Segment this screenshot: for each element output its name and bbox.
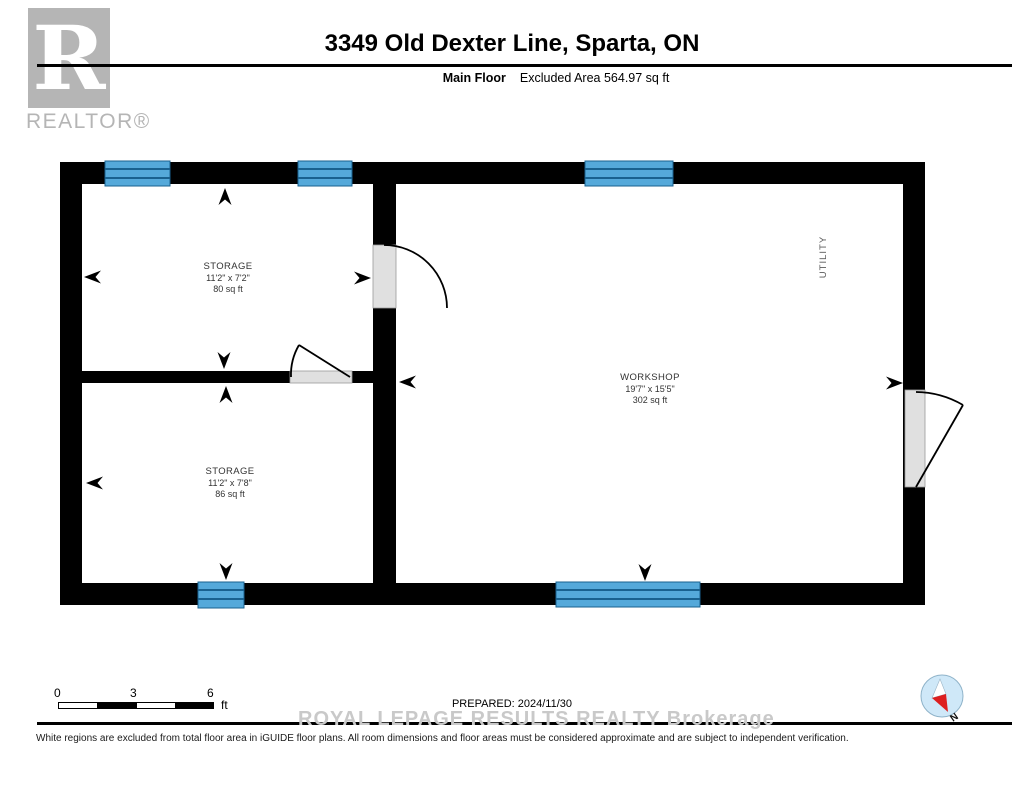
dimension-arrow-left (86, 477, 103, 490)
window (105, 161, 170, 186)
wall-bottom (60, 583, 922, 605)
dimension-arrow-left (84, 271, 101, 284)
title-rule (37, 64, 1012, 67)
room-label-storage-2: STORAGE 11'2" x 7'8" 86 sq ft (205, 466, 254, 499)
room-area: 86 sq ft (215, 489, 245, 499)
floorplan-drawing: STORAGE 11'2" x 7'2" 80 sq ft STORAGE 11… (0, 0, 1024, 791)
floorplan-page: R REALTOR® 3349 Old Dexter Line, Sparta,… (0, 0, 1024, 791)
wall-right (903, 162, 925, 605)
room-dimensions: 19'7" x 15'5" (625, 384, 674, 394)
window (585, 161, 673, 186)
window (198, 582, 244, 608)
room-area: 80 sq ft (213, 284, 243, 294)
disclaimer-text: White regions are excluded from total fl… (36, 733, 1021, 744)
dimension-arrow-right (886, 377, 903, 390)
realtor-logo-letter: R (32, 10, 105, 106)
room-label-workshop: WORKSHOP 19'7" x 15'5" 302 sq ft (620, 372, 680, 405)
door-exterior-right (905, 390, 963, 487)
room-label-storage-1: STORAGE 11'2" x 7'2" 80 sq ft (203, 261, 252, 294)
room-area: 302 sq ft (633, 395, 668, 405)
dimension-arrow-down (218, 352, 231, 369)
wall-top (60, 162, 922, 184)
room-dimensions: 11'2" x 7'2" (206, 273, 250, 283)
room-name: STORAGE (205, 466, 254, 477)
dimension-arrow-down (639, 564, 652, 581)
door-between-storages (290, 345, 352, 383)
window (298, 161, 352, 186)
room-label-utility: UTILITY (818, 236, 829, 278)
room-dimensions: 11'2" x 7'8" (208, 478, 252, 488)
door-storage-to-workshop (373, 245, 447, 308)
wall-interior-vertical (373, 162, 396, 605)
dimension-arrow-down (220, 563, 233, 580)
dimension-arrow-right (354, 272, 371, 285)
realtor-logo: R (28, 8, 110, 108)
wall-left (60, 162, 82, 605)
room-name: WORKSHOP (620, 372, 680, 383)
dimension-arrow-up (220, 386, 233, 403)
dimension-arrow-up (219, 188, 232, 205)
window (556, 582, 700, 607)
room-name: STORAGE (203, 261, 252, 272)
brokerage-watermark: ROYAL LEPAGE RESULTS REALTY Brokerage (298, 708, 728, 731)
dimension-arrow-left (399, 376, 416, 389)
